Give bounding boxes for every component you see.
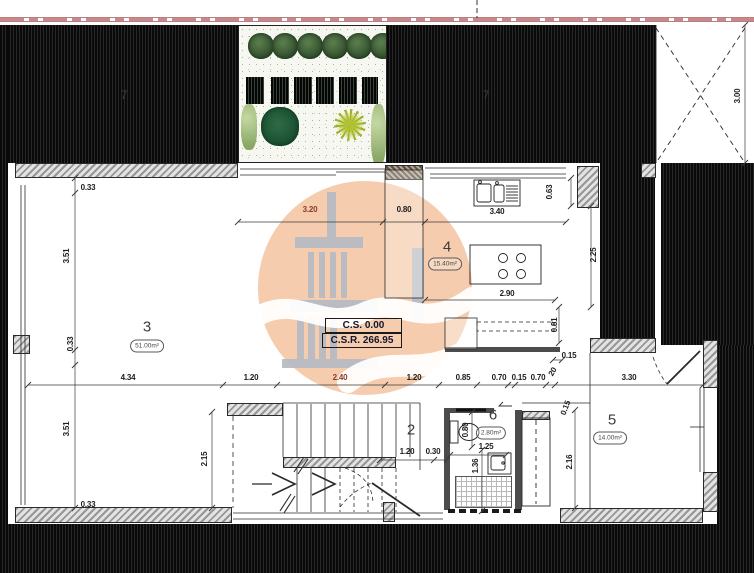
dimension-label: 1.36 — [472, 459, 480, 474]
dimension-label: 1.25 — [479, 443, 494, 451]
dimension-label: 0.33 — [81, 501, 96, 509]
room-number-label: 2 — [407, 422, 415, 439]
dimension-label: 0.15 — [562, 352, 577, 360]
dimension-label: 0.80 — [397, 206, 412, 214]
room-area-label: 2.80m² — [476, 427, 506, 440]
room-number-label: 5 — [608, 412, 616, 429]
room5-door — [653, 351, 700, 384]
entry-door — [340, 483, 420, 516]
dimension-label: 0.30 — [426, 448, 441, 456]
dimension-label: 1.20 — [407, 374, 422, 382]
duct-shaft — [522, 418, 550, 506]
floor-plan: C.S. 0.00 C.S.R. 266.95 3.200.803.400.63… — [0, 0, 754, 573]
dimension-label: 3.51 — [63, 422, 71, 437]
dimension-label: 2.25 — [590, 248, 598, 263]
level-csr-text: C.S.R. 266.95 — [331, 335, 394, 346]
level-cs-text: C.S. 0.00 — [343, 320, 385, 331]
dimension-label: 3.20 — [303, 206, 318, 214]
dimension-label: 3.00 — [734, 89, 742, 104]
dimension-label: 0.70 — [531, 374, 546, 382]
dimension-label: 0.33 — [67, 337, 75, 352]
washbasin-icon — [488, 453, 511, 474]
dimension-label: 0.85 — [456, 374, 471, 382]
vent-arrow-icon — [499, 402, 512, 406]
dimension-label: 3.51 — [63, 249, 71, 264]
dimension-label: 0.70 — [492, 374, 507, 382]
dimension-label: 0.81 — [551, 318, 559, 333]
dimension-label: 0.33 — [81, 184, 96, 192]
room-number-label: 4 — [443, 239, 451, 256]
room-area-label: 15.40m² — [428, 258, 462, 271]
dimension-label: 0.63 — [546, 185, 554, 200]
dimension-label: 3.30 — [622, 374, 637, 382]
dimension-label: 2.90 — [500, 290, 515, 298]
dimension-label: 1.20 — [244, 374, 259, 382]
room-area-label: 14.00m² — [593, 432, 627, 445]
dimension-label: 3.40 — [490, 208, 505, 216]
room-area-label: 51.00m² — [130, 340, 164, 353]
dimension-label: 0.80 — [462, 423, 470, 438]
stove-icon — [470, 245, 541, 284]
plan-linework — [0, 0, 754, 573]
dimension-label: 1.20 — [400, 448, 415, 456]
kitchen-sink-icon — [474, 180, 520, 206]
level-csr-box: C.S.R. 266.95 — [322, 333, 402, 348]
dimension-label: 4.34 — [121, 374, 136, 382]
dimension-label: 2.40 — [333, 374, 348, 382]
patio-cross — [656, 25, 745, 163]
level-cs-box: C.S. 0.00 — [325, 318, 402, 333]
dimension-label: 0.15 — [512, 374, 527, 382]
room-number-label: 3 — [143, 319, 151, 336]
dimension-label: 2.16 — [566, 455, 574, 470]
dimension-label: 2.15 — [201, 452, 209, 467]
room-number-label: 6 — [489, 407, 497, 424]
